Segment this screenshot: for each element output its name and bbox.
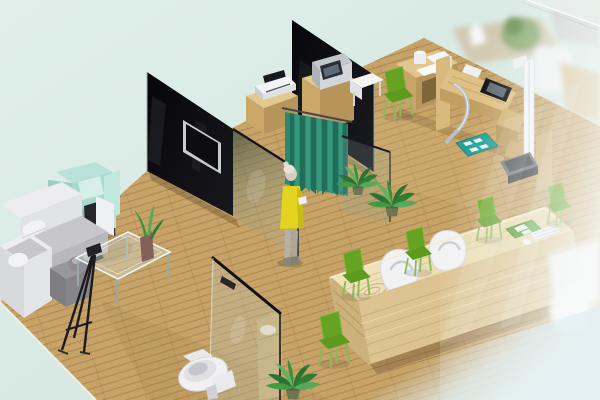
person-boot: [291, 256, 299, 265]
scene-svg: Isometric 3D rendering of a clinic inter…: [0, 0, 600, 400]
microscope-body: [414, 54, 426, 64]
person-hair-bun: [283, 161, 288, 166]
person-boot: [283, 257, 291, 266]
clinic-render-image: Isometric 3D rendering of a clinic inter…: [0, 0, 600, 400]
